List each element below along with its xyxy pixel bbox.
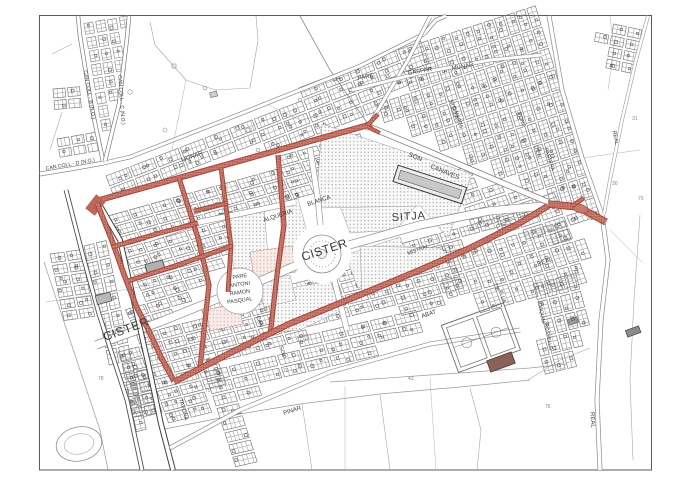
svg-text:78: 78 [98,376,104,382]
svg-text:62: 62 [505,91,511,97]
svg-text:76: 76 [545,404,551,410]
svg-text:70: 70 [205,388,211,394]
svg-text:70: 70 [283,368,289,374]
svg-text:30: 30 [612,181,618,187]
svg-text:REAL: REAL [588,412,595,429]
svg-text:70: 70 [638,196,644,202]
svg-text:43: 43 [408,376,414,382]
svg-text:31: 31 [632,116,638,122]
svg-text:SITJA: SITJA [391,210,426,224]
